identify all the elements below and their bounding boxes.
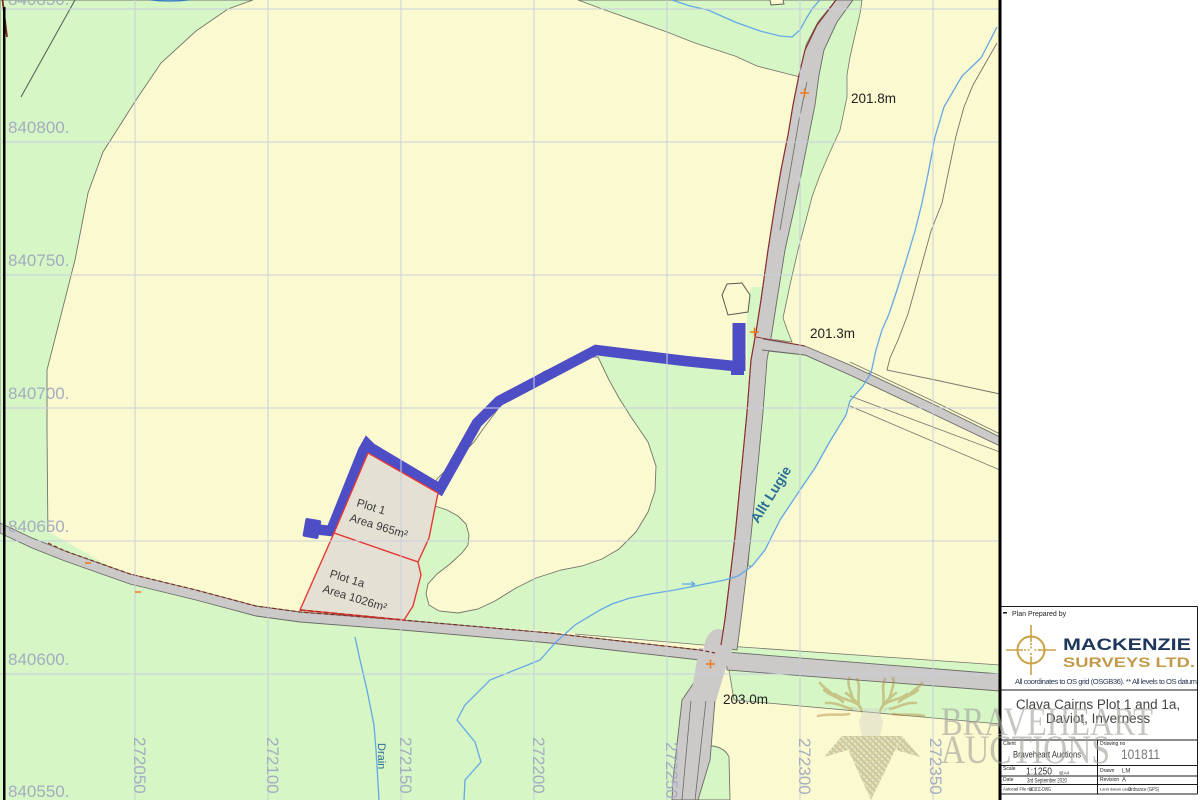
svg-text:201.3m: 201.3m — [810, 326, 855, 341]
svg-text:LM: LM — [1122, 769, 1130, 775]
svg-text:SURVEYS LTD.: SURVEYS LTD. — [1063, 654, 1195, 670]
svg-text:840700.: 840700. — [8, 384, 69, 403]
svg-text:3rd September 2020: 3rd September 2020 — [1027, 778, 1067, 785]
svg-text:Ordnance (GPS): Ordnance (GPS) — [1128, 787, 1159, 793]
svg-text:840550.: 840550. — [8, 782, 69, 800]
svg-text:272050: 272050 — [130, 737, 149, 794]
svg-text:A: A — [1122, 778, 1126, 784]
svg-text:840750.: 840750. — [8, 251, 69, 270]
svg-text:All coordinates to OS grid (OS: All coordinates to OS grid (OSGB36). ** … — [1015, 677, 1197, 686]
svg-text:Plan Prepared by: Plan Prepared by — [1012, 611, 1067, 618]
svg-text:840800.: 840800. — [8, 118, 69, 137]
svg-text:101811-DWG: 101811-DWG — [1029, 787, 1051, 793]
svg-text:272100: 272100 — [263, 737, 282, 794]
svg-text:840650.: 840650. — [8, 517, 69, 536]
svg-text:201.8m: 201.8m — [851, 91, 896, 106]
svg-text:272150: 272150 — [396, 737, 415, 794]
svg-text:203.0m: 203.0m — [723, 692, 768, 707]
svg-text:Date: Date — [1003, 777, 1014, 783]
svg-text:840850.: 840850. — [8, 0, 69, 9]
svg-text:840600.: 840600. — [8, 650, 69, 669]
svg-text:Drain: Drain — [375, 743, 387, 769]
svg-text:272200: 272200 — [529, 737, 548, 794]
svg-text:272250: 272250 — [662, 742, 681, 799]
svg-text:272300: 272300 — [795, 738, 814, 795]
svg-text:MACKENZIE: MACKENZIE — [1063, 635, 1191, 654]
svg-text:AUCTIONS: AUCTIONS — [941, 727, 1110, 772]
svg-text:101811: 101811 — [1121, 747, 1160, 762]
svg-text:Revision: Revision — [1100, 777, 1119, 783]
